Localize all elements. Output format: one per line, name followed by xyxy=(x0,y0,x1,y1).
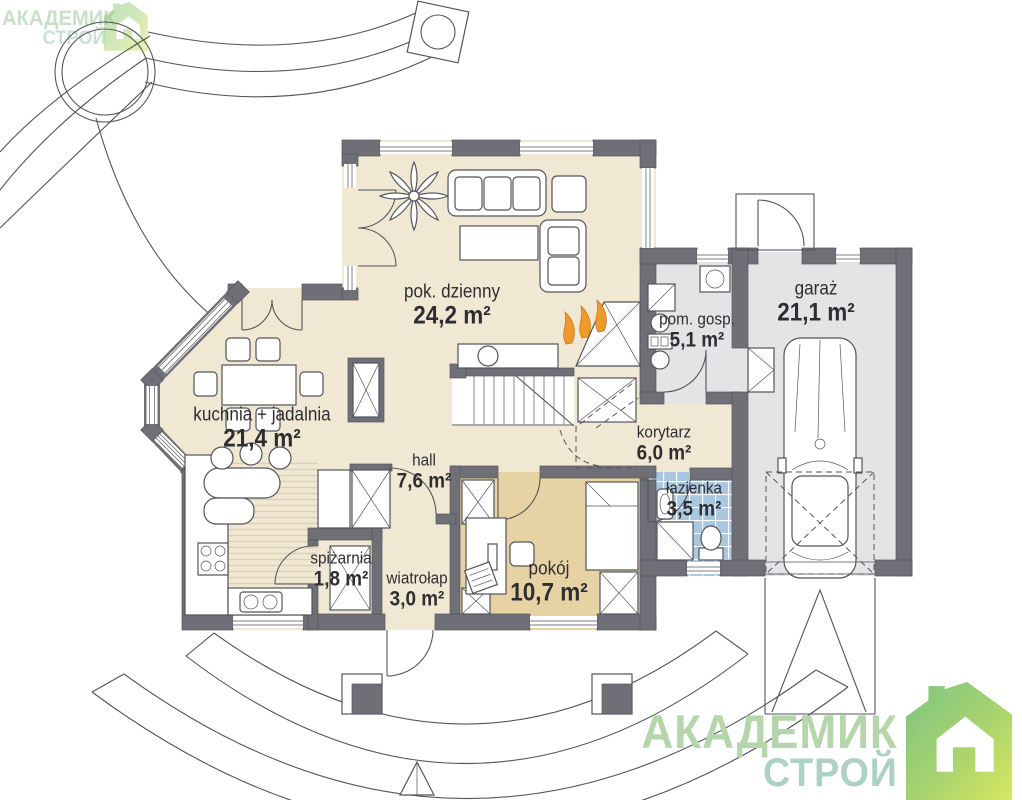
chair xyxy=(226,338,250,361)
room-label-vestibule: wiatrołap 3,0 m² xyxy=(386,570,447,611)
kitchen-terrace-door xyxy=(242,300,302,330)
room-label-room: pokój 10,7 m² xyxy=(510,559,588,606)
chair xyxy=(256,338,280,361)
terrace-pergola xyxy=(0,1,469,340)
bed xyxy=(586,482,638,570)
shower xyxy=(657,522,693,560)
room-label-pantry: spiżarnia 1,8 m² xyxy=(310,550,371,591)
dining-table xyxy=(222,365,296,405)
kitchen-island xyxy=(204,468,280,524)
floor-main xyxy=(146,140,740,630)
sideboard xyxy=(458,344,558,368)
kitchen-counter xyxy=(228,588,312,615)
kitchen-counter xyxy=(185,455,228,615)
room-label-hall: hall 7,6 m² xyxy=(397,452,452,493)
window xyxy=(642,168,654,248)
kitchen-fixtures xyxy=(185,443,312,615)
room-label-living: pok. dzienny 24,2 m² xyxy=(404,282,500,329)
room-label-garage: garaż 21,1 m² xyxy=(777,279,855,326)
garage-step xyxy=(748,348,774,392)
room-area: 21,1 m² xyxy=(777,299,855,327)
garage-side-door xyxy=(758,200,804,246)
chimney-shaft xyxy=(348,358,384,422)
room-name: pokój xyxy=(510,559,588,579)
room-name: garaż xyxy=(777,279,855,299)
room-name: korytarz xyxy=(637,424,692,442)
chair xyxy=(194,372,217,396)
window xyxy=(233,616,303,628)
armchair xyxy=(552,176,586,212)
room-name: kuchnia + jadalnia xyxy=(193,405,330,425)
windows xyxy=(150,142,861,628)
porch-step-marker xyxy=(400,762,434,795)
window xyxy=(380,142,452,154)
room-area: 1,8 m² xyxy=(310,567,371,590)
room-name: hall xyxy=(397,452,452,470)
boiler xyxy=(648,284,675,311)
pergola-post xyxy=(407,1,469,63)
front-entry-door xyxy=(387,630,433,676)
room-name: spiżarnia xyxy=(310,550,371,568)
wardrobe xyxy=(462,588,490,614)
side-porch xyxy=(736,194,814,250)
window xyxy=(520,142,593,154)
room-area: 24,2 m² xyxy=(404,302,500,330)
chair xyxy=(300,372,323,396)
room-label-bathroom: łazienka 3,5 m² xyxy=(666,480,722,521)
room-area: 3,5 m² xyxy=(666,497,722,520)
window xyxy=(344,266,356,290)
room-area: 6,0 m² xyxy=(637,441,692,464)
driveway xyxy=(765,578,875,714)
utility-door xyxy=(664,350,706,392)
room-name: wiatrołap xyxy=(386,570,447,588)
watermark-brand-line2: СТРОЙ xyxy=(2,29,106,50)
bay-window xyxy=(150,386,155,424)
floor-plan-canvas xyxy=(0,0,1022,800)
floors xyxy=(146,140,912,630)
room-label-kitchen: kuchnia + jadalnia 21,4 m² xyxy=(193,405,330,452)
room-area: 21,4 m² xyxy=(193,425,330,453)
walls xyxy=(141,140,912,630)
room-label-utility: pom. gosp. 5,1 m² xyxy=(659,311,735,352)
desk xyxy=(466,518,506,594)
brand-house-icon xyxy=(906,682,1012,800)
garage-door xyxy=(765,472,875,574)
utility-sink xyxy=(700,266,730,292)
watermark-brand-line1: АКАДЕМИК xyxy=(2,8,106,29)
stair-well xyxy=(452,376,574,426)
flame-icon xyxy=(580,306,591,338)
brand-logo-text: АКАДЕМИК СТРОЙ xyxy=(642,708,898,793)
window xyxy=(697,250,728,262)
bay-window xyxy=(156,434,188,466)
tank xyxy=(651,351,669,369)
coffee-table xyxy=(460,226,538,260)
room-area: 10,7 m² xyxy=(510,579,588,607)
toilet xyxy=(699,526,723,560)
staircase xyxy=(452,376,638,468)
stove xyxy=(198,543,228,575)
terrace-double-door xyxy=(358,190,396,266)
car xyxy=(778,338,862,578)
room-name: łazienka xyxy=(666,480,722,498)
wardrobe xyxy=(352,470,390,528)
watermark-logo-text: АКАДЕМИК СТРОЙ xyxy=(2,8,106,50)
floor-plan-page: АКАДЕМИК СТРОЙ xyxy=(0,0,1022,800)
sofa xyxy=(448,170,546,216)
wardrobe xyxy=(462,480,494,524)
window xyxy=(687,562,720,574)
wardrobe xyxy=(600,572,638,614)
kitchen-sink xyxy=(240,592,282,612)
brand-line2: СТРОЙ xyxy=(642,753,898,793)
porch-column xyxy=(592,674,632,714)
flame-icon xyxy=(564,312,575,344)
room-label-corridor: korytarz 6,0 m² xyxy=(637,424,692,465)
loveseat xyxy=(540,220,586,292)
room-name: pok. dzienny xyxy=(404,282,500,302)
porch-column xyxy=(342,674,382,714)
room-name: pom. gosp. xyxy=(659,311,735,329)
fireplace xyxy=(564,300,640,366)
window xyxy=(344,164,356,188)
brand-line1: АКАДЕМИК xyxy=(642,708,898,755)
window xyxy=(530,616,597,628)
cabinet xyxy=(318,470,350,528)
flame-icon xyxy=(596,300,607,332)
bay-window xyxy=(159,299,231,373)
rug xyxy=(465,562,498,593)
room-area: 3,0 m² xyxy=(386,587,447,610)
room-door xyxy=(498,478,540,520)
plant xyxy=(380,162,448,230)
pantry-door xyxy=(275,546,313,584)
window xyxy=(836,250,860,262)
room-area: 7,6 m² xyxy=(397,469,452,492)
room-area: 5,1 m² xyxy=(659,328,735,351)
floor-kitchen-workzone xyxy=(226,462,318,598)
